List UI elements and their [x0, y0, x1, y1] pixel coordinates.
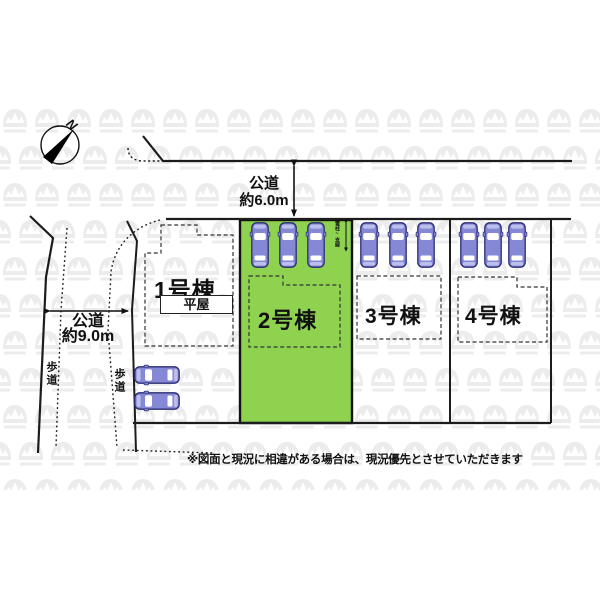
west-road-name: 公道	[53, 314, 123, 329]
lot-4-label: 4号棟	[465, 300, 522, 330]
car-lot4-1	[459, 223, 479, 267]
lot-1-note-box: 平屋	[160, 295, 233, 314]
car-lot4-3	[507, 223, 527, 267]
car-lot3-2	[388, 223, 408, 267]
west-road-label: 公道 約9.0m	[53, 314, 123, 344]
car-lot2-3	[306, 223, 326, 267]
north-road-label: 公道 約6.0m	[236, 175, 292, 209]
car-lot3-3	[416, 223, 436, 267]
car-lot1-2	[135, 391, 179, 411]
car-lot1-1	[135, 365, 179, 385]
utility-pole-note: 電柱~支線	[334, 221, 339, 247]
sidewalk-label-west: 歩道	[43, 361, 59, 387]
car-lot4-2	[483, 223, 503, 267]
lot-2-label: 2号棟	[258, 303, 317, 335]
car-lot2-2	[278, 223, 298, 267]
car-lot3-1	[359, 223, 379, 267]
disclaimer-text: ※図面と現況に相違がある場合は、現況優先とさせていただきます	[187, 451, 523, 467]
sidewalk-label-east: 歩道	[111, 368, 127, 394]
west-road-size: 約9.0m	[53, 329, 123, 344]
north-road-name: 公道	[236, 175, 292, 192]
north-road-size: 約6.0m	[236, 192, 292, 209]
lot-3-label: 3号棟	[365, 300, 422, 330]
car-lot2-1	[250, 223, 270, 267]
site-plan-canvas: 1号棟 平屋 2号棟 3号棟 4号棟 公道 約6.0m 公道 約9.0m 歩道 …	[0, 0, 600, 600]
